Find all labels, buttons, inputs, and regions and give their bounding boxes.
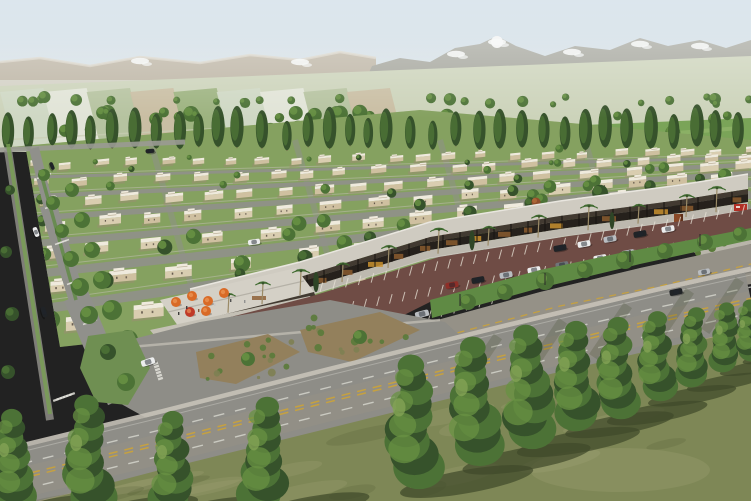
- atmosphere: [0, 0, 751, 118]
- aerial-community-render: [0, 0, 751, 501]
- scene-canvas: [0, 0, 751, 501]
